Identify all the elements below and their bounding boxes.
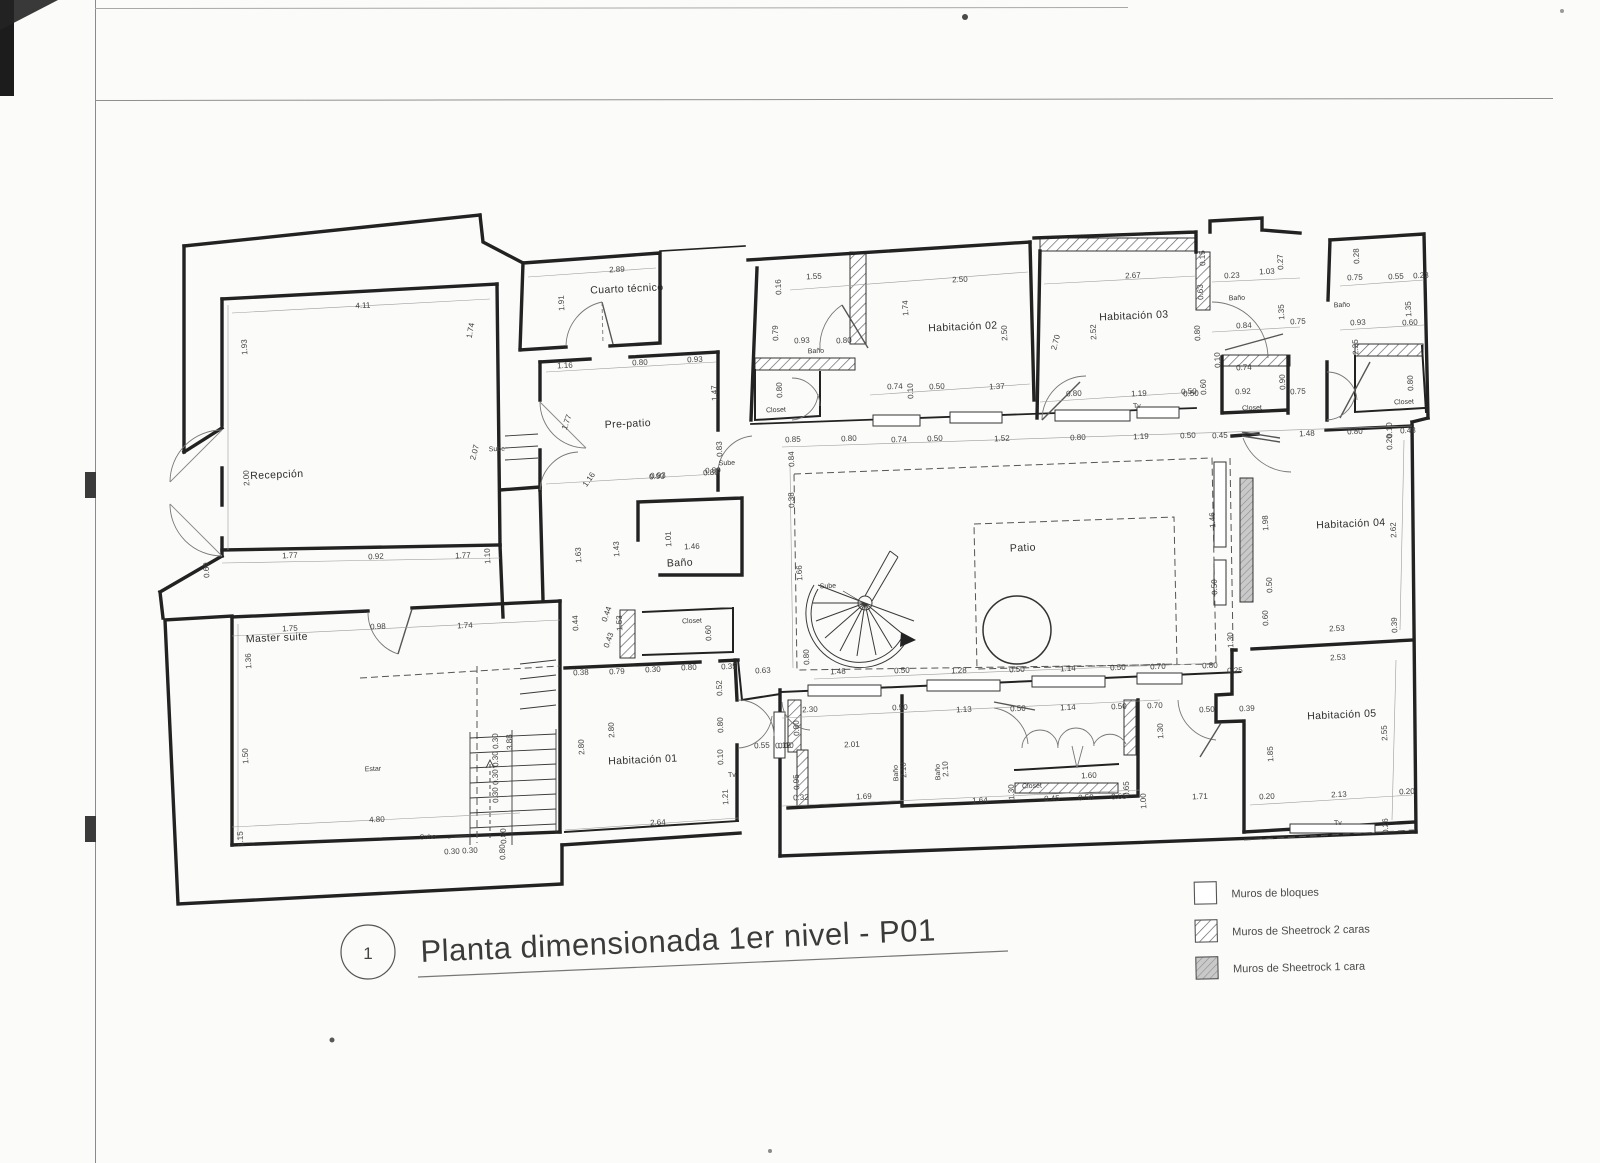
dimension-0-45: 0.45 [1044, 794, 1060, 804]
dimension-1-10: 1.10 [483, 548, 493, 565]
dimension-1-30: 1.30 [1156, 723, 1166, 740]
dimension-0-10: 0.10 [716, 749, 726, 766]
dimension-0-38: 0.38 [787, 492, 797, 509]
dimension-1-53: 1.53 [615, 615, 625, 632]
dimension-0-60: 0.60 [1261, 610, 1271, 627]
dimension-0-10: 0.10 [906, 383, 916, 400]
dimension-2-01: 2.01 [844, 740, 860, 750]
dimension-1-35: 1.35 [1277, 304, 1287, 321]
scanned-floor-plan-page: 2.891.911.550.162.501.742.502.672.522.70… [0, 0, 1600, 1163]
dimension-0-50: 0.50 [1078, 793, 1094, 803]
dimension-1-91: 1.91 [557, 295, 567, 312]
dimension-0-50: 0.50 [1009, 665, 1025, 675]
dimension-0-50: 0.50 [927, 434, 943, 444]
dimension-1-77: 1.77 [455, 551, 471, 561]
dimension-0-80: 0.80 [1070, 433, 1086, 443]
label-tv: Tv [1133, 403, 1142, 410]
dimension-0-69: 0.69 [202, 562, 212, 579]
dimension-0-50: 0.50 [1210, 579, 1220, 596]
dimension-0-92: 0.92 [368, 552, 384, 562]
dimension-0-55: 0.55 [754, 741, 770, 751]
dimension-0-63: 0.63 [1196, 284, 1206, 301]
dimension-1-98: 1.98 [1261, 515, 1271, 532]
dimension-0-65: 0.65 [1122, 781, 1132, 798]
dimension-1-19: 1.19 [1133, 432, 1149, 442]
dimension-0-80: 0.80 [836, 336, 852, 346]
label-sube: Sube [820, 583, 837, 591]
dimension-0-92: 0.92 [1235, 387, 1251, 397]
dimension-0-79: 0.79 [771, 325, 781, 342]
dimension-0-23: 0.23 [1224, 271, 1240, 281]
dimension-0-50: 0.50 [1010, 704, 1026, 714]
dimension-0-80: 0.80 [1406, 375, 1416, 392]
dimension-0-55: 0.55 [1388, 272, 1404, 282]
dimension-0-74: 0.74 [891, 435, 907, 445]
dimension-0-93: 0.93 [794, 336, 810, 346]
dimension-0-20: 0.20 [1385, 434, 1395, 451]
dimension-1-93: 1.93 [240, 339, 250, 356]
dimension-0-80: 0.80 [681, 663, 697, 673]
plan-door-arcs [170, 302, 1370, 768]
dimension-2-30: 2.30 [802, 705, 818, 715]
dimension-2-52: 2.52 [1089, 324, 1099, 341]
dimension-1-77: 1.77 [560, 413, 574, 431]
dimension-0-45: 0.45 [1212, 431, 1228, 441]
dimension-0-80: 0.80 [775, 382, 785, 399]
dimension-1-16: 1.16 [557, 361, 573, 371]
dimension-0-74: 0.74 [887, 382, 903, 392]
dimension-3-88: 3.88 [505, 734, 515, 751]
dimension-1-03: 1.03 [1259, 267, 1275, 277]
dimension-2-89: 2.89 [609, 265, 625, 275]
dimension-0-93: 0.93 [649, 472, 665, 482]
dimension-0-74: 0.74 [1236, 363, 1252, 373]
dimension-0-80: 0.80 [716, 717, 726, 734]
legend-label-sheetrock-2: Muros de Sheetrock 2 caras [1232, 924, 1370, 939]
dimension-0-70: 0.70 [1147, 701, 1163, 711]
dimension-0-83: 0.83 [715, 441, 725, 458]
dimension-0-20: 0.20 [1399, 787, 1415, 797]
dimension-1-55: 1.55 [806, 272, 822, 282]
dimension-1-35: 1.35 [1404, 301, 1414, 318]
label-ba-o: Baño [1334, 302, 1351, 310]
dimension-0-50: 0.50 [1111, 702, 1127, 712]
dimension-1-14: 1.14 [1060, 664, 1076, 674]
dimension-0-20: 0.20 [1259, 792, 1275, 802]
dimension-0-80: 0.80 [703, 468, 719, 478]
dimension-0-80: 0.80 [1193, 325, 1203, 342]
dimension-1-74: 1.74 [457, 621, 473, 631]
dimension-1-36: 1.36 [244, 653, 254, 670]
dimension-1-52: 1.52 [994, 434, 1010, 444]
dimension-1-30: 1.30 [1226, 632, 1236, 649]
dimension-0-28: 0.28 [1352, 248, 1362, 265]
dimension-1-48: 1.48 [1299, 429, 1315, 439]
dimension-1-21: 1.21 [721, 789, 731, 806]
dimension-0-80: 0.80 [1202, 661, 1218, 671]
dimension-1-77: 1.77 [282, 551, 298, 561]
label-habitaci-n-03: Habitación 03 [1099, 308, 1169, 323]
dimension-0-15: 0.15 [1198, 250, 1208, 267]
label-closet: Closet [682, 618, 702, 626]
dimension-0-30: 0.30 [444, 847, 460, 857]
dimension-2-64: 2.64 [650, 818, 666, 828]
dimension-2-25: 2.25 [1351, 339, 1361, 356]
dimension-0-50: 0.50 [1180, 431, 1196, 441]
dimension-0-50: 0.50 [929, 382, 945, 392]
title-number: 1 [363, 944, 372, 963]
dimension-0-80: 0.80 [632, 358, 648, 368]
dimension-2-67: 2.67 [1125, 271, 1141, 281]
label-master-suite: Master suite [246, 631, 308, 646]
dimension-0-30: 0.30 [491, 769, 501, 786]
dimension-0-60: 0.60 [704, 625, 714, 642]
label-closet: Closet [1242, 405, 1262, 413]
dimension-2-53: 2.53 [1330, 653, 1346, 663]
dimension-0-80: 0.80 [1347, 427, 1363, 437]
dimension-0-26: 0.26 [1381, 818, 1391, 835]
dimension-0-50: 0.50 [1265, 577, 1275, 594]
dimension-0-75: 0.75 [1290, 387, 1306, 397]
dimension-0-75: 0.75 [1290, 317, 1306, 327]
dimension-0-44: 0.44 [600, 605, 614, 623]
dimension-1-74: 1.74 [901, 300, 911, 317]
label-ba-o: Baño [935, 764, 943, 781]
label-tv: Tv [728, 772, 737, 779]
dimension-1-19: 1.19 [1131, 389, 1147, 399]
dimension-2-07: 2.07 [468, 443, 481, 461]
wall-legend: Muros de bloques Muros de Sheetrock 2 ca… [1194, 879, 1371, 980]
dimension-0-30: 0.30 [491, 733, 501, 750]
dimension-0-63: 0.63 [755, 666, 771, 676]
dimension-0-32: 0.32 [793, 793, 809, 803]
dimension-1-66: 1.66 [795, 565, 805, 582]
dimension-0-98: 0.98 [370, 622, 386, 632]
label-closet: Closet [1022, 783, 1042, 791]
dimension-0-35: 0.35 [721, 662, 737, 672]
label-closet: Closet [1394, 399, 1414, 407]
dimension-0-50: 0.50 [894, 666, 910, 676]
label-ba-o: Baño [1229, 295, 1246, 303]
dimension-0-80: 0.80 [802, 649, 812, 666]
dimension-1-71: 1.71 [1192, 792, 1208, 802]
dimension-0-75: 0.75 [1347, 273, 1363, 283]
label-patio: Patio [1010, 541, 1036, 554]
label-pre-patio: Pre-patio [605, 417, 652, 431]
dimension-0-30: 0.30 [462, 846, 478, 856]
dimension-1-85: 1.85 [1266, 746, 1276, 763]
label-cuarto-t-cnico: Cuarto técnico [590, 281, 664, 296]
label-closet: Closet [766, 407, 786, 415]
legend-label-blocks: Muros de bloques [1231, 887, 1319, 901]
dimension-1-14: 1.14 [1060, 703, 1076, 713]
dimension-0-50: 0.50 [1110, 663, 1126, 673]
legend-swatch-sheetrock-2 [1195, 920, 1217, 942]
dimension-0-30: 0.30 [645, 665, 661, 675]
dimension-4-11: 4.11 [355, 301, 371, 311]
label-recepci-n: Recepción [250, 468, 304, 482]
floor-plan-drawing: 2.891.911.550.162.501.742.502.672.522.70… [0, 0, 1600, 1163]
dimension-0-95: 0.95 [792, 774, 802, 791]
dimension-1-15: 1.15 [236, 831, 246, 848]
dimension-0-60: 0.60 [1402, 318, 1418, 328]
dimension-0-43: 0.43 [602, 631, 616, 649]
label-habitaci-n-02: Habitación 02 [928, 319, 998, 334]
label-tv: Tv [1334, 820, 1343, 827]
dimension-0-80: 0.80 [498, 844, 508, 861]
dimension-0-50: 0.50 [892, 703, 908, 713]
label-habitaci-n-04: Habitación 04 [1316, 516, 1386, 531]
dimension-0-80: 0.80 [792, 720, 802, 737]
label-estar: Estar [365, 766, 382, 774]
dimension-1-63: 1.63 [574, 547, 584, 564]
label-sube: Sube [420, 834, 437, 842]
dimension-0-25: 0.25 [1227, 666, 1243, 676]
label-habitaci-n-01: Habitación 01 [608, 752, 678, 767]
dimension-1-30: 1.30 [1007, 784, 1017, 801]
dimension-0-39: 0.39 [1390, 617, 1400, 634]
dimension-0-60: 0.60 [1199, 379, 1209, 396]
dimension-0-84: 0.84 [1236, 321, 1252, 331]
dimension-2-50: 2.50 [1000, 325, 1010, 342]
legend-swatch-sheetrock-1 [1196, 957, 1218, 979]
page-title: Planta dimensionada 1er nivel - P01 [420, 912, 937, 969]
dimension-0-84: 0.84 [787, 451, 797, 468]
dimension-0-80: 0.80 [1066, 389, 1082, 399]
label-sube: Sube [489, 446, 506, 454]
patio-boundary-dashed [360, 458, 1414, 843]
dimension-0-93: 0.93 [687, 355, 703, 365]
dimension-0-12: 0.12 [775, 741, 791, 751]
dimension-0-80: 0.80 [499, 828, 509, 845]
dimension-1-00: 1.00 [1139, 793, 1149, 810]
dimension-0-30: 0.30 [491, 787, 501, 804]
dimension-0-50: 0.50 [1181, 387, 1197, 397]
patio-tree-circle [983, 596, 1051, 664]
dimension-0-52: 0.52 [715, 680, 725, 697]
dimension-0-16: 0.16 [774, 279, 784, 296]
dimension-2-70: 2.70 [1049, 333, 1062, 351]
dimension-0-44: 0.44 [571, 615, 581, 632]
legend-swatch-blocks [1194, 882, 1216, 904]
dimension-1-60: 1.60 [1081, 771, 1097, 781]
label-ba-o: Baño [667, 556, 694, 569]
dimension-0-90: 0.90 [1278, 374, 1288, 391]
dimension-1-50: 1.50 [241, 748, 251, 765]
dimension-0-70: 0.70 [1150, 662, 1166, 672]
dimension-1-37: 1.37 [989, 382, 1005, 392]
dimension-0-27: 0.27 [1276, 254, 1286, 271]
dimension-2-55: 2.55 [1380, 725, 1390, 742]
label-sube: Sube [719, 460, 736, 468]
dimension-1-74: 1.74 [465, 322, 477, 339]
dimension-0-10: 0.10 [1213, 352, 1223, 369]
title-block: 1 Planta dimensionada 1er nivel - P01 [341, 912, 1008, 979]
dimension-2-53: 2.53 [1329, 624, 1345, 634]
dimension-0-30: 0.30 [491, 751, 501, 768]
dimension-1-64: 1.64 [972, 796, 988, 806]
dimension-1-69: 1.69 [856, 792, 872, 802]
dimension-0-93: 0.93 [1350, 318, 1366, 328]
dimension-4-80: 4.80 [369, 815, 385, 825]
dimension-0-80: 0.80 [841, 434, 857, 444]
dimension-1-28: 1.28 [951, 666, 967, 676]
legend-label-sheetrock-1: Muros de Sheetrock 1 cara [1233, 961, 1366, 976]
dimension-2-80: 2.80 [607, 722, 617, 739]
dimension-0-85: 0.85 [785, 435, 801, 445]
label-ba-o: Baño [893, 765, 901, 782]
scan-artifacts [0, 0, 1564, 1163]
dimension-1-46: 1.46 [684, 542, 700, 552]
dimension-1-16: 1.16 [581, 470, 598, 488]
dimension-2-50: 2.50 [952, 275, 968, 285]
dimension-1-47: 1.47 [710, 385, 720, 402]
label-ba-o: Baño [808, 348, 825, 356]
label-habitaci-n-05: Habitación 05 [1307, 707, 1377, 722]
dimension-2-13: 2.13 [1331, 790, 1347, 800]
dimension-0-79: 0.79 [609, 667, 625, 677]
dimension-2-62: 2.62 [1389, 522, 1399, 539]
dimension-0-39: 0.39 [1239, 704, 1255, 714]
dimension-1-13: 1.13 [956, 705, 972, 715]
dimension-0-23: 0.23 [1413, 271, 1429, 281]
dimension-0-50: 0.50 [1199, 705, 1215, 715]
dimension-1-46: 1.46 [1208, 512, 1218, 529]
dimension-0-38: 0.38 [573, 668, 589, 678]
dimension-1-43: 1.43 [612, 541, 622, 558]
dimension-1-01: 1.01 [664, 531, 674, 548]
dimension-1-48: 1.48 [830, 667, 846, 677]
dimension-0-48: 0.48 [1400, 426, 1416, 436]
spiral-staircase-icon [806, 551, 916, 668]
dimension-2-80: 2.80 [577, 739, 587, 756]
